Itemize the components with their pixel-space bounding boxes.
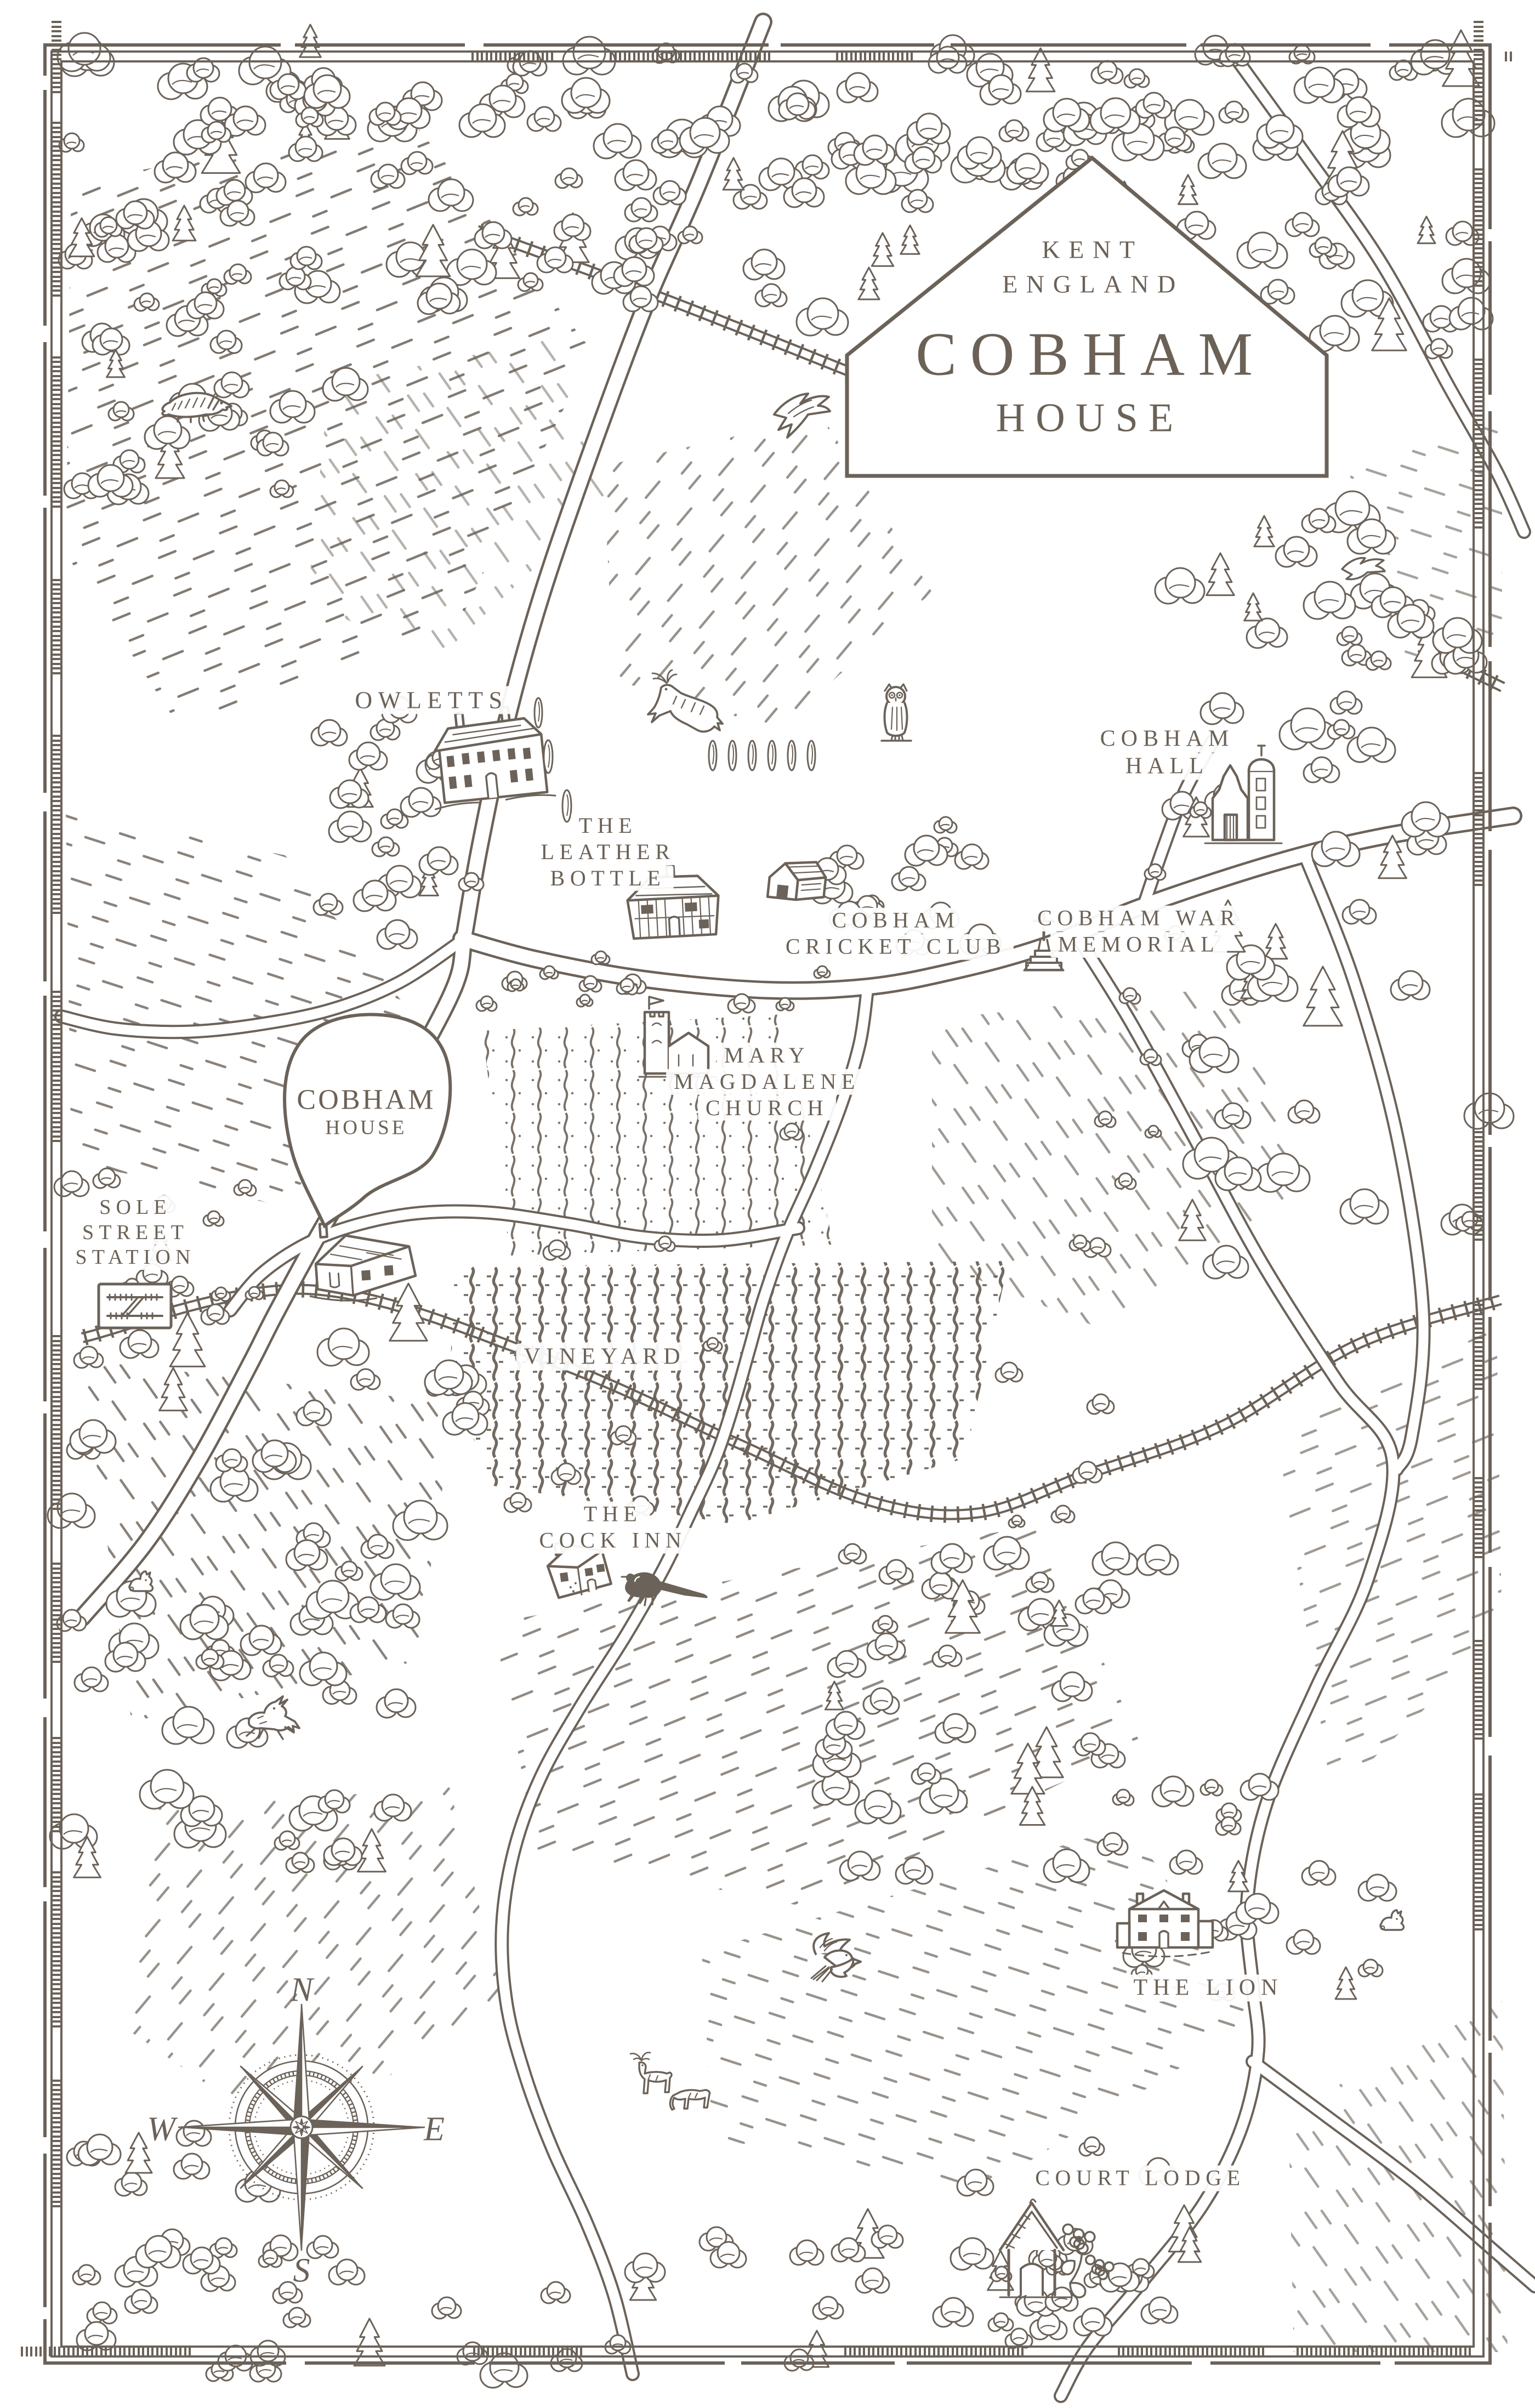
cartouche-region: KENT	[1042, 235, 1143, 264]
court-lodge-lychgate-icon	[1000, 2199, 1071, 2297]
label-the-lion: THE LION	[1125, 1974, 1290, 2002]
label-sole-street-station: SOLE STREET STATION	[67, 1195, 203, 1270]
map-artwork	[0, 0, 1535, 2408]
rabbit-icon	[1380, 1910, 1404, 1930]
label-owletts: OWLETTS	[347, 685, 515, 714]
label-war-memorial: COBHAM WAR MEMORIAL	[1030, 905, 1248, 958]
grazing-deer-icon	[670, 2090, 709, 2110]
compass-letter-south: S	[293, 2252, 310, 2291]
owl-icon	[882, 684, 911, 741]
label-court-lodge: COURT LODGE	[1027, 2165, 1253, 2192]
label-vineyard: VINEYARD	[516, 1343, 693, 1371]
standing-stag-icon	[630, 2053, 672, 2093]
vineyard-rows	[450, 1261, 1009, 1524]
label-leather-bottle: THE LEATHER BOTTLE	[533, 813, 683, 891]
label-cobham-hall: COBHAM HALL	[1093, 725, 1242, 780]
compass-letter-west: W	[147, 2110, 175, 2149]
label-mary-magdalene-church: MARY MAGDALENE CHURCH	[666, 1042, 868, 1121]
compass-letter-east: E	[424, 2110, 445, 2149]
marker-label-cobham-house: COBHAM HOUSE	[297, 1084, 435, 1140]
compass-letter-north: N	[290, 1971, 312, 2010]
cartouche-title: COBHAM	[916, 320, 1266, 390]
cartouche-subtitle: HOUSE	[996, 395, 1184, 442]
cobham-house-illustrated-map: KENT ENGLAND COBHAM HOUSE COBHAM HOUSE O…	[0, 0, 1535, 2408]
cricket-pavilion-icon	[768, 857, 827, 902]
sole-street-station-icon	[99, 1284, 171, 1328]
label-cock-inn: THE COCK INN	[531, 1501, 694, 1554]
label-cricket-club: COBHAM CRICKET CLUB	[778, 907, 1014, 961]
cartouche-country: ENGLAND	[1002, 270, 1184, 299]
